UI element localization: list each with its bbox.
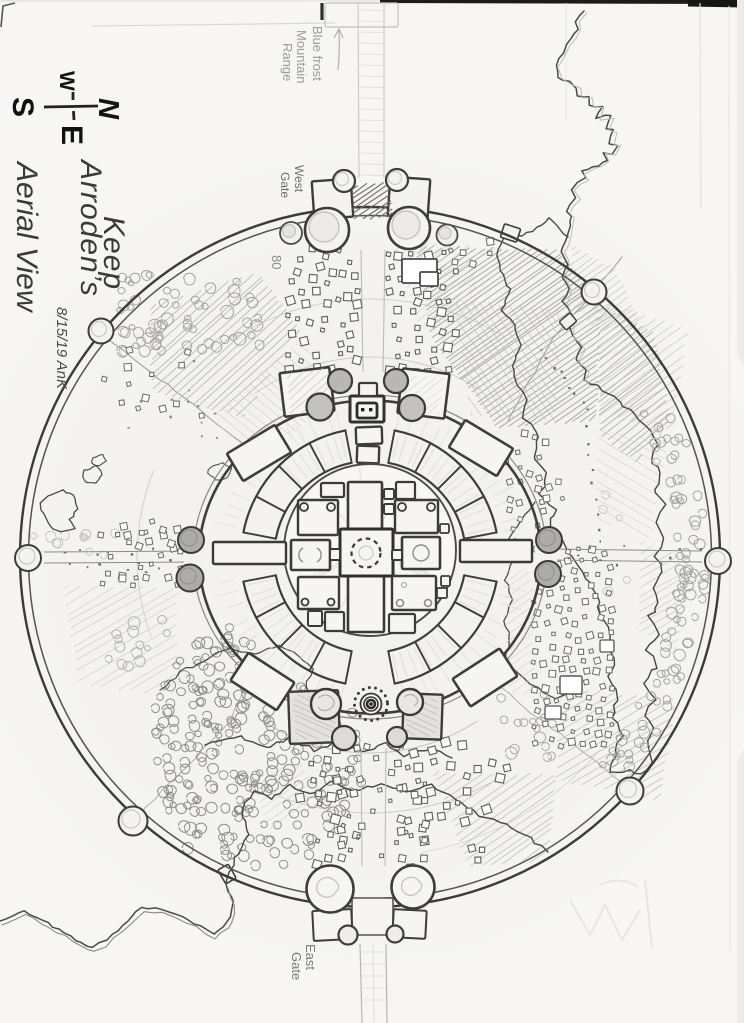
svg-text:Gate: Gate <box>289 952 304 980</box>
svg-text:Aerial View: Aerial View <box>10 160 43 314</box>
svg-text:80: 80 <box>269 255 284 269</box>
svg-text:Mountain: Mountain <box>294 30 309 83</box>
svg-text:Keep: Keep <box>97 216 130 290</box>
svg-text:8/15/19 AnK: 8/15/19 AnK <box>53 307 70 390</box>
svg-text:Blue frost: Blue frost <box>310 26 325 81</box>
svg-text:Gate: Gate <box>278 172 292 198</box>
svg-text:S: S <box>6 97 39 117</box>
svg-text:East: East <box>303 944 318 970</box>
svg-text:West: West <box>292 165 306 193</box>
svg-text:Range: Range <box>280 43 295 81</box>
svg-text:W: W <box>55 71 78 91</box>
svg-text:E: E <box>55 125 88 145</box>
svg-text:N: N <box>92 98 124 120</box>
